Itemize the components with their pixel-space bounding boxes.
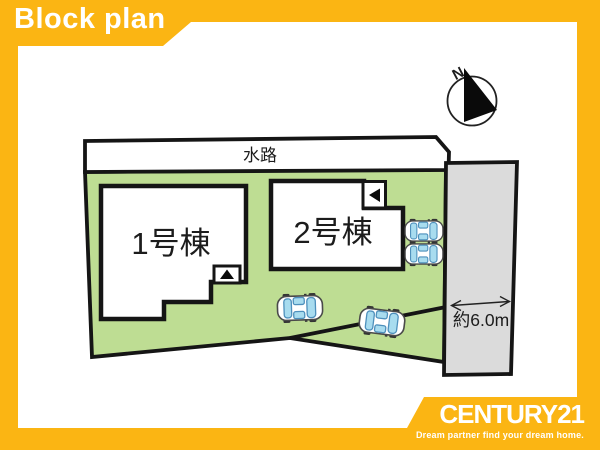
car-icon — [277, 293, 323, 324]
car-icon — [405, 219, 443, 243]
frame-right-strip — [577, 0, 600, 450]
entrance-marker-icon — [363, 182, 386, 209]
brand-wordmark: CENTURY21 — [416, 402, 584, 427]
site-plan: 水路 約6.0m 1号棟 2号棟 — [0, 0, 600, 450]
building-2-label: 2号棟 — [293, 215, 372, 250]
banner-title: Block plan — [14, 3, 166, 36]
waterway-label: 水路 — [243, 146, 277, 165]
north-arrow-icon: N — [448, 64, 498, 126]
frame-left-strip — [0, 0, 18, 450]
building-1-label: 1号棟 — [131, 226, 210, 261]
car-icon — [405, 242, 443, 266]
entrance-marker-icon — [214, 266, 240, 283]
road-area — [444, 162, 517, 375]
road-width-label: 約6.0m — [453, 310, 509, 330]
brand-tagline: Dream partner find your dream home. — [416, 430, 584, 440]
block-plan-page: 水路 約6.0m 1号棟 2号棟 — [0, 0, 600, 450]
century21-logo: CENTURY21 Dream partner find your dream … — [416, 402, 584, 440]
car-icon — [358, 305, 406, 339]
